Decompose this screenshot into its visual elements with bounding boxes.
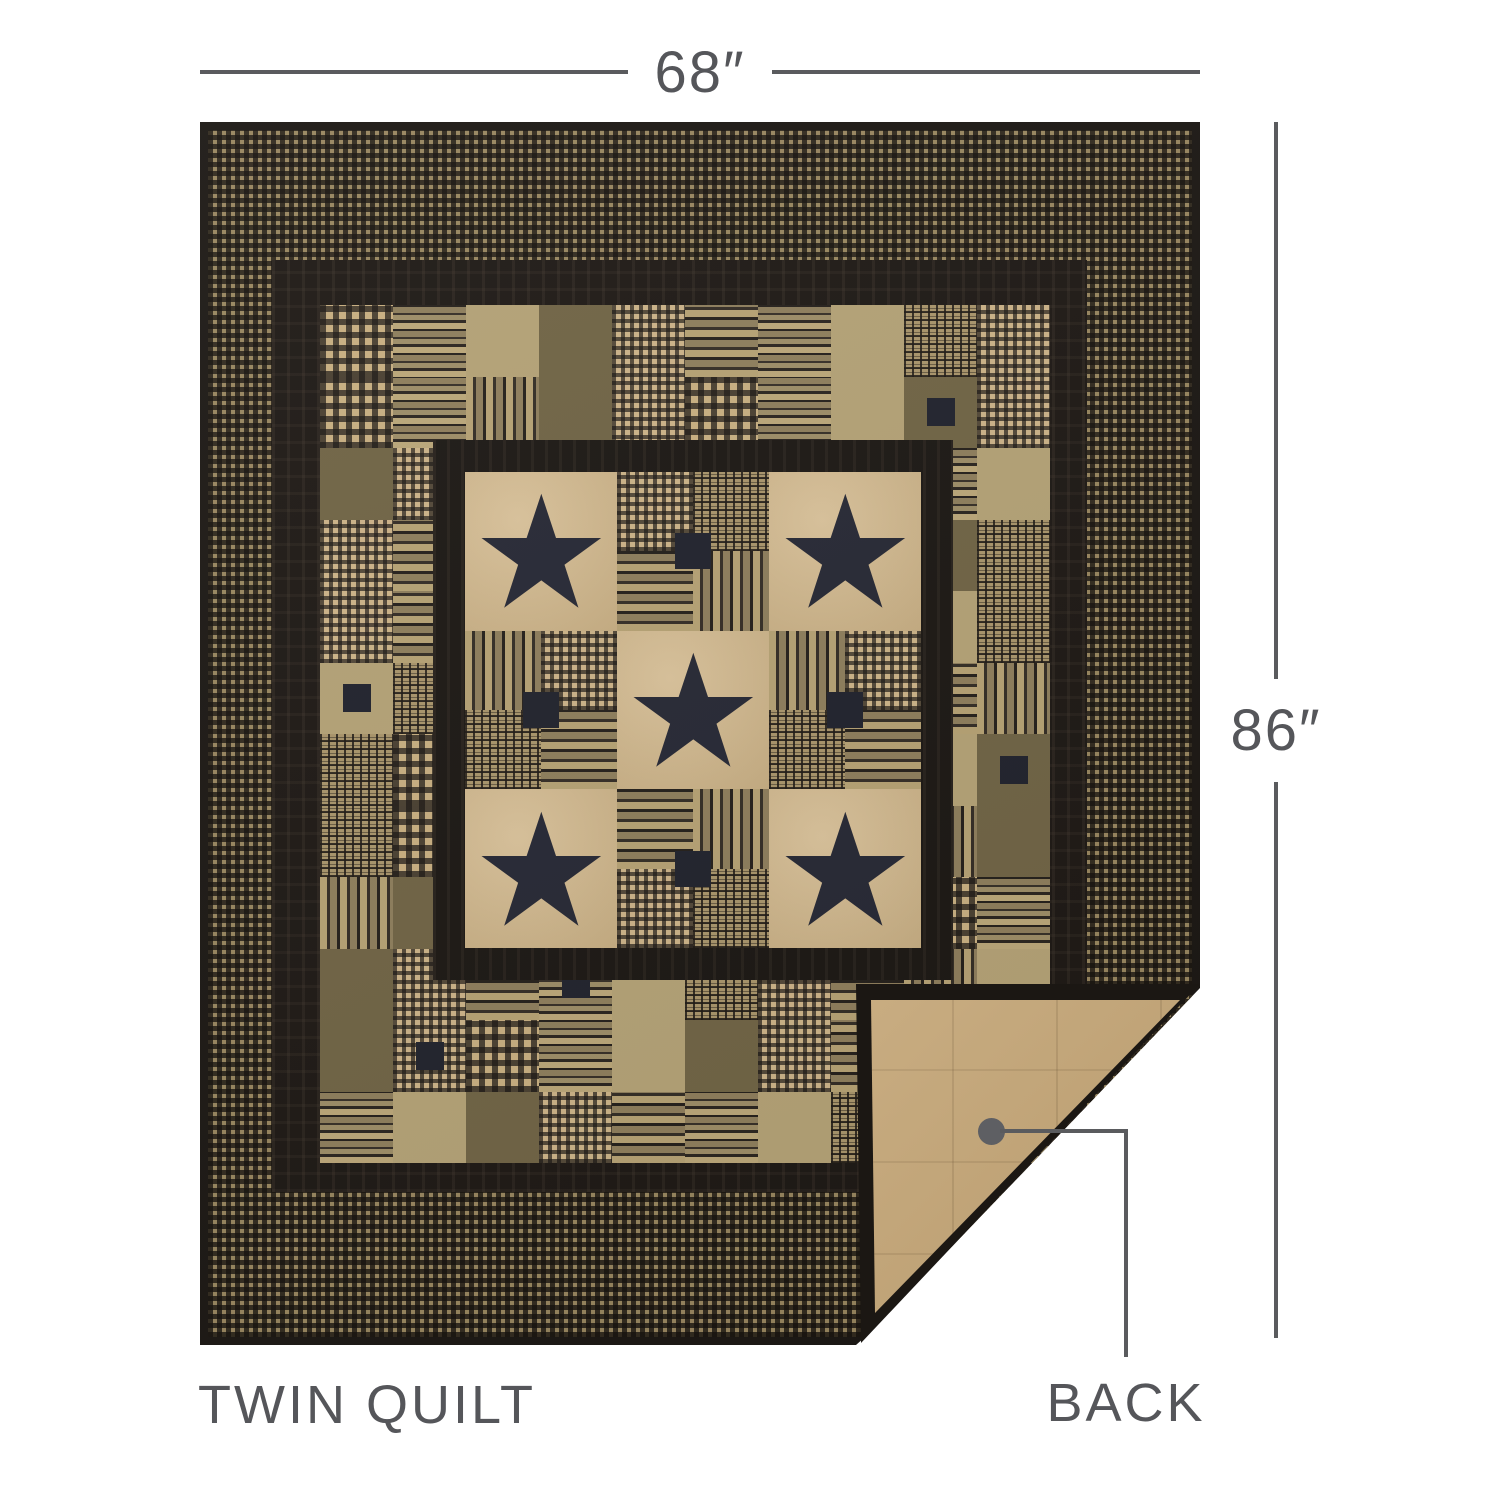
patch-tile (320, 448, 393, 520)
patch-tile (977, 520, 1050, 592)
height-dimension: 86″ (1236, 122, 1316, 1338)
width-dimension-label: 68″ (654, 39, 745, 106)
width-dimension: 68″ (200, 42, 1200, 102)
back-callout-line-horizontal (1000, 1129, 1128, 1133)
patch-tile (977, 663, 1050, 735)
star-block (465, 789, 617, 948)
width-dimension-line-left (200, 70, 628, 74)
patch-tile (977, 377, 1050, 449)
log-cabin-block (465, 631, 617, 790)
patch-tile (831, 377, 904, 449)
star-icon (783, 486, 908, 616)
patch-tile (977, 591, 1050, 663)
log-cabin-block (617, 789, 769, 948)
patch-tile (977, 734, 1050, 806)
patch-tile (612, 377, 685, 449)
patch-tile (977, 448, 1050, 520)
patch-tile (393, 305, 466, 377)
patch-tile (466, 305, 539, 377)
patch-tile (320, 663, 393, 735)
width-dimension-line-right (772, 70, 1200, 74)
black-center-square (523, 692, 559, 728)
patch-tile (685, 1020, 758, 1092)
quilt-folded-corner (848, 975, 1200, 1347)
back-callout-line-vertical (1124, 1129, 1128, 1357)
patch-tile (904, 377, 977, 449)
patch-tile (320, 806, 393, 878)
center-grid (465, 472, 921, 948)
log-cabin-block (617, 472, 769, 631)
quilt-center-panel (433, 440, 953, 980)
product-size-label: TWIN QUILT (198, 1374, 536, 1436)
patch-tile (539, 1092, 612, 1164)
patch-tile (320, 377, 393, 449)
patch-tile (758, 1020, 831, 1092)
black-center-square (1000, 756, 1028, 784)
patch-tile (320, 305, 393, 377)
patch-tile (758, 305, 831, 377)
patch-tile (320, 949, 393, 1021)
height-dimension-line-bottom (1274, 782, 1278, 1339)
patch-tile (320, 877, 393, 949)
patch-tile (393, 1092, 466, 1164)
patch-tile (539, 1020, 612, 1092)
patch-tile (466, 1092, 539, 1164)
height-dimension-line-top (1274, 122, 1278, 679)
black-center-square (416, 1042, 444, 1070)
patch-tile (758, 1092, 831, 1164)
patch-tile (612, 1092, 685, 1164)
back-label: BACK (1046, 1372, 1205, 1434)
patch-tile (831, 305, 904, 377)
patch-tile (612, 305, 685, 377)
black-center-square (927, 398, 955, 426)
patch-tile (393, 377, 466, 449)
patch-tile (320, 591, 393, 663)
height-dimension-label: 86″ (1230, 697, 1321, 764)
patch-tile (466, 1020, 539, 1092)
black-center-square (343, 684, 371, 712)
star-block (465, 472, 617, 631)
patch-tile (685, 1092, 758, 1164)
patch-tile (977, 806, 1050, 878)
log-cabin-block (769, 631, 921, 790)
patch-tile (320, 520, 393, 592)
patch-tile (320, 1020, 393, 1092)
patch-tile (539, 305, 612, 377)
patch-tile (320, 1092, 393, 1164)
patch-tile (685, 305, 758, 377)
black-center-square (675, 851, 711, 887)
patch-tile (466, 377, 539, 449)
star-icon (479, 486, 604, 616)
star-block (769, 472, 921, 631)
black-center-square (675, 533, 711, 569)
patch-tile (612, 1020, 685, 1092)
patch-tile (977, 305, 1050, 377)
patch-tile (758, 377, 831, 449)
quilt-image (200, 122, 1200, 1345)
patch-tile (685, 377, 758, 449)
patch-tile (539, 377, 612, 449)
patch-tile (977, 877, 1050, 949)
star-block (769, 789, 921, 948)
patch-tile (393, 1020, 466, 1092)
star-icon (631, 645, 756, 775)
patch-tile (904, 305, 977, 377)
patch-tile (320, 734, 393, 806)
star-icon (783, 804, 908, 934)
star-icon (479, 804, 604, 934)
black-center-square (827, 692, 863, 728)
star-block (617, 631, 769, 790)
